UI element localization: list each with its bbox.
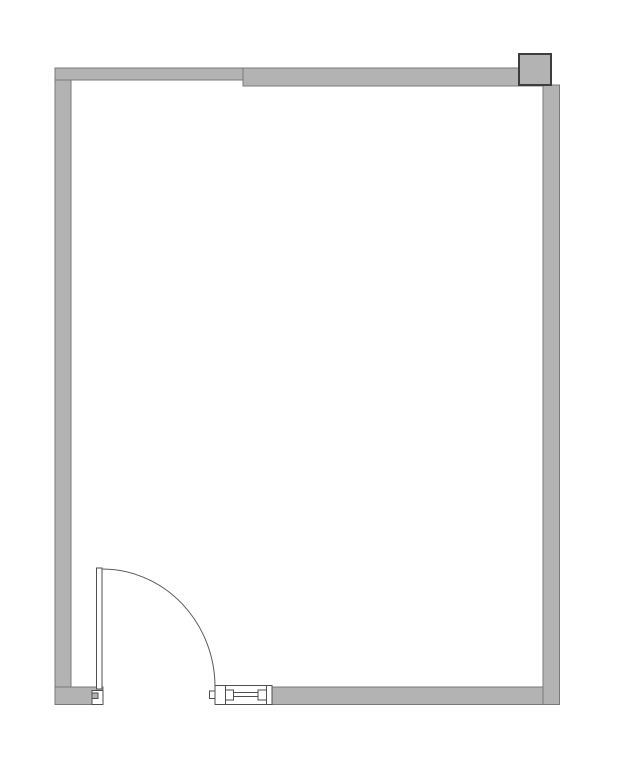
wall-top-thin	[55, 68, 243, 80]
door-leaf	[97, 568, 103, 689]
wall-top-thick	[243, 68, 543, 86]
wall-bottom	[272, 687, 560, 705]
floor-plan-svg	[0, 0, 638, 768]
floor-plan	[0, 0, 638, 768]
window-sash-right	[258, 690, 267, 700]
column	[519, 54, 551, 85]
window-sash-left	[226, 690, 234, 700]
door-jamb-stop	[92, 693, 98, 699]
door-swing-arc	[102, 569, 215, 687]
wall-right	[543, 85, 560, 705]
wall-left	[55, 68, 71, 705]
window-left-nub	[210, 691, 216, 699]
